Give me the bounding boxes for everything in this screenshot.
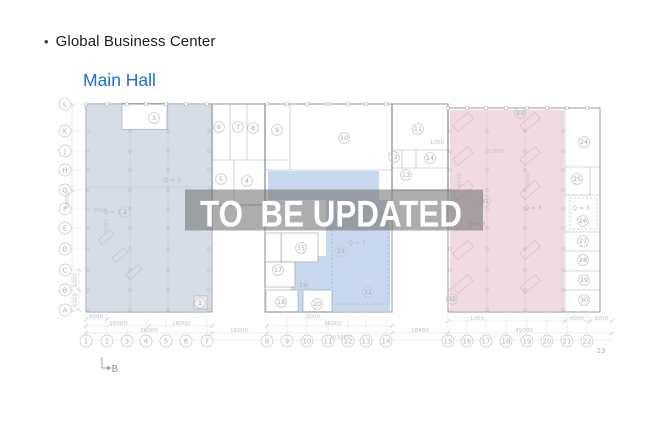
dim-label: 2000 (306, 314, 321, 320)
col-axis-label-7: 7 (205, 337, 209, 345)
col-axis-label-20: 20 (543, 337, 552, 345)
row-axis-label-B: B (63, 286, 68, 294)
room-label-3: 3 (152, 115, 156, 122)
column-tick (347, 103, 350, 106)
dim-label: 6000 (89, 314, 104, 320)
row-axis-label-D: D (62, 245, 67, 253)
dim-label: 3000 (594, 316, 609, 322)
column-tick (327, 103, 330, 106)
row-axis-label-C: C (63, 266, 68, 274)
dim-label: 16000 (230, 328, 248, 334)
room-label-15: 15 (297, 245, 305, 252)
dim-label: 6000 (457, 172, 463, 187)
zone-label: Q = 3 (572, 205, 590, 212)
room-label-8: 8 (251, 125, 255, 132)
col-axis-label-18: 18 (502, 337, 511, 345)
col-axis-label-5: 5 (164, 337, 168, 345)
row-axis-label-K: K (63, 127, 68, 135)
row-axis-label-J: J (63, 147, 66, 155)
dim-label: 36000 (140, 328, 158, 334)
page-title: Global Business Center (56, 33, 216, 50)
room-label-30: 30 (580, 297, 588, 304)
dim-label: 1000 (430, 140, 445, 146)
column-tick (505, 107, 508, 110)
col-axis-label-10: 10 (303, 337, 312, 345)
room-label-12: 12 (390, 154, 398, 161)
column-tick (566, 107, 569, 110)
column-tick (206, 103, 209, 106)
row-axis-label-H: H (62, 166, 67, 174)
room-label-32: 32 (448, 296, 456, 303)
col-axis-label-4: 4 (144, 337, 149, 345)
zone-label: Q = 3 (524, 205, 542, 212)
dim-label: 3000 (104, 218, 110, 233)
column-tick (365, 103, 368, 106)
column-tick (586, 107, 589, 110)
dim-label: 18000 (172, 321, 190, 327)
room-label-1: 1 (198, 300, 202, 307)
dim-label: 36000 (324, 321, 342, 327)
hall-link[interactable]: Main Hall (83, 70, 156, 91)
dim-label: 1800 (490, 149, 505, 155)
row-axis-label-L: L (63, 100, 67, 108)
room-label-21: 21 (337, 248, 345, 255)
column-tick (485, 107, 488, 110)
overlay-text: TO BE UPDATED (200, 194, 462, 235)
room-16-box (265, 233, 281, 262)
dim-label: 6000 (570, 316, 585, 322)
dim-label: 18400 (411, 328, 429, 334)
room-label-2: 2 (123, 209, 127, 216)
marker-b-label: B (112, 364, 119, 375)
row-axis-label-E: E (63, 224, 67, 232)
room-label-18: 18 (277, 299, 285, 306)
col-axis-label-9: 9 (285, 337, 289, 345)
room-label-10: 10 (340, 135, 348, 142)
col-axis-label-21: 21 (563, 337, 572, 345)
room-label-20: 20 (313, 301, 321, 308)
room-label-5: 5 (219, 176, 223, 183)
column-tick (286, 103, 289, 106)
room-label-9: 9 (275, 127, 279, 134)
col-axis-label-22: 22 (583, 337, 592, 345)
col-axis-label-6: 6 (184, 337, 189, 345)
dim-label: 1000 (470, 316, 485, 322)
room-17-box (265, 262, 295, 287)
breadcrumb: • Global Business Center (44, 33, 215, 50)
room-label-27: 27 (579, 238, 587, 245)
column-tick (126, 103, 129, 106)
col-axis-label-13: 13 (362, 337, 371, 345)
column-tick (145, 103, 148, 106)
room-label-17: 17 (274, 267, 282, 274)
bullet-icon: • (44, 34, 49, 49)
room-label-29: 29 (580, 277, 588, 284)
room-label-6: 6 (217, 124, 221, 131)
dim-label: 6000 (73, 292, 79, 307)
room-3-box (122, 104, 167, 130)
room-label-11: 11 (414, 126, 422, 133)
col-axis-label-16: 16 (463, 337, 472, 345)
column-tick (546, 107, 549, 110)
room-label-23: 23 (516, 110, 524, 117)
col-axis-label-19: 19 (523, 337, 532, 345)
col-axis-label-23: 23 (597, 347, 606, 355)
dim-label: 60000 (65, 191, 71, 209)
dim-label: 153660 (329, 335, 351, 341)
dim-label: 45000 (515, 328, 533, 334)
column-tick (185, 103, 188, 106)
dim-label: 6000 (73, 272, 79, 287)
dim-label: 18000 (109, 321, 127, 327)
overlay-banner: TO BE UPDATED (185, 190, 483, 235)
col-axis-label-15: 15 (444, 337, 453, 345)
column-tick (266, 103, 269, 106)
room-label-7: 7 (236, 124, 240, 131)
col-axis-label-17: 17 (482, 337, 491, 345)
dim-label: 6000 (526, 172, 532, 187)
room-label-13: 13 (402, 172, 410, 179)
room-label-4: 4 (245, 178, 249, 185)
col-axis-label-2: 2 (105, 337, 109, 345)
room-label-25: 25 (573, 176, 581, 183)
room-label-22: 22 (364, 289, 372, 296)
zone-label: Q = 3 (163, 177, 181, 184)
room-label-19: 19 (299, 282, 307, 289)
col-axis-label-1: 1 (84, 337, 88, 345)
floor-plan-svg: LKJHGFEDCBA 1234567891011121314151617181… (58, 98, 614, 388)
column-tick (306, 103, 309, 106)
zone-label: Q = 3 (348, 240, 366, 247)
column-tick (447, 107, 450, 110)
room-label-26: 26 (579, 218, 587, 225)
row-axis-label-A: A (63, 306, 68, 314)
room-label-28: 28 (579, 257, 587, 264)
column-tick (526, 107, 529, 110)
room-label-24: 24 (580, 139, 588, 146)
zone-label: Q = 3 (103, 209, 121, 216)
column-tick (106, 103, 109, 106)
col-axis-label-3: 3 (125, 337, 129, 345)
column-tick (385, 103, 388, 106)
col-axis-label-14: 14 (382, 337, 391, 345)
column-tick (165, 103, 168, 106)
marker-b: B (102, 357, 118, 375)
room-label-14: 14 (426, 155, 434, 162)
col-axis-label-8: 8 (265, 337, 269, 345)
column-tick (466, 107, 469, 110)
